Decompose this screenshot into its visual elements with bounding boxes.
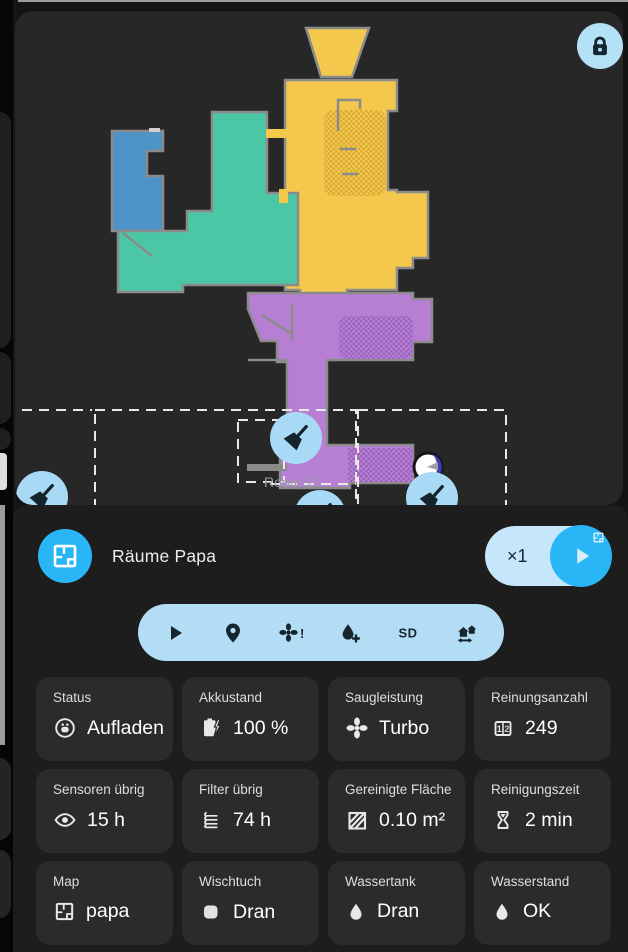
preset-title: Räume Papa (112, 546, 216, 567)
sd-card-icon: SD (395, 621, 421, 645)
water-plus-icon (338, 621, 362, 645)
lock-icon (587, 33, 613, 59)
stat-label: Wischtuch (199, 874, 313, 889)
svg-text:1: 1 (497, 724, 502, 734)
divider-line (18, 0, 628, 2)
stat-card-sensors: Sensoren übrig 15 h (36, 769, 173, 853)
map-transfer-icon (454, 621, 479, 645)
sd-card-button[interactable]: SD (385, 610, 431, 656)
stat-card-area: Gereinigte Fläche 0.10 m² (328, 769, 465, 853)
svg-text:2: 2 (504, 724, 509, 734)
floorplan-icon (53, 900, 76, 923)
stat-value: 249 (525, 717, 558, 740)
room-label: Room 17 (264, 474, 321, 490)
clean-room-button[interactable] (270, 412, 322, 464)
stat-value: Dran (233, 901, 275, 924)
stat-card-clean-time: Reinigungszeit 2 min (474, 769, 611, 853)
floorplan-icon (50, 541, 80, 571)
screen: Room 17 (0, 0, 628, 952)
counter-icon: 1 2 (491, 716, 515, 740)
stat-card-status: Status Aufladen (36, 677, 173, 761)
underlying-card-edge (0, 758, 11, 840)
stat-card-mop: Wischtuch Dran (182, 861, 319, 945)
stat-label: Sensoren übrig (53, 782, 167, 797)
stat-value: 15 h (87, 809, 125, 832)
robot-vacuum-icon (53, 716, 77, 740)
stat-label: Gereinigte Fläche (345, 782, 459, 797)
water-drop-icon (345, 901, 367, 923)
stat-card-filter: Filter übrig 74 h (182, 769, 319, 853)
bottom-sheet: Räume Papa ×1 (13, 505, 628, 952)
stat-value: papa (86, 900, 129, 923)
iteration-count: ×1 (485, 546, 528, 567)
hourglass-icon (491, 808, 515, 832)
map-lock-button[interactable] (577, 23, 623, 69)
striped-area-icon (345, 808, 369, 832)
stat-card-water-tank: Wassertank Dran (328, 861, 465, 945)
locate-pin-icon (221, 621, 245, 645)
stat-value: 2 min (525, 809, 573, 832)
panel-header: Räume Papa ×1 (13, 505, 628, 586)
locate-button[interactable] (210, 610, 256, 656)
stat-label: Status (53, 690, 167, 705)
stat-card-water-level: Wasserstand OK (474, 861, 611, 945)
robot-map[interactable]: Room 17 (15, 11, 623, 505)
stat-value: OK (523, 900, 551, 923)
battery-charging-icon (199, 716, 223, 740)
play-icon (163, 621, 187, 645)
fan-speed-button[interactable]: ! (268, 610, 314, 656)
underlying-card-edge (0, 428, 11, 450)
svg-text:!: ! (300, 626, 304, 641)
stat-label: Reinungsanzahl (491, 690, 605, 705)
stat-value: Aufladen (87, 717, 164, 740)
scrollbar[interactable] (0, 505, 5, 745)
stat-label: Saugleistung (345, 690, 459, 705)
underlying-card-edge (0, 352, 11, 424)
stat-card-battery: Akkustand 100 % (182, 677, 319, 761)
cloth-icon (199, 900, 223, 924)
floorplan-icon (592, 531, 605, 544)
iteration-pill[interactable]: ×1 (485, 526, 611, 586)
stat-value: 100 % (233, 717, 288, 740)
stat-value: Dran (377, 900, 419, 923)
underlying-card-edge (0, 850, 11, 918)
stat-label: Filter übrig (199, 782, 313, 797)
stat-label: Map (53, 874, 167, 889)
play-button[interactable] (152, 610, 198, 656)
segments-avatar-button[interactable] (38, 529, 92, 583)
stat-value: 0.10 m² (379, 809, 445, 832)
svg-text:SD: SD (399, 625, 418, 640)
underlying-card-edge (0, 112, 11, 348)
stat-cards-grid: Status Aufladen Akkustand (36, 677, 628, 945)
clean-room-button[interactable] (294, 490, 346, 505)
start-cleanup-button[interactable] (550, 525, 612, 587)
stat-card-clean-count: Reinungsanzahl 1 2 249 (474, 677, 611, 761)
room-blue-region[interactable] (112, 131, 163, 231)
water-usage-button[interactable] (327, 610, 373, 656)
water-drop-icon (491, 901, 513, 923)
map-card: Room 17 (15, 11, 623, 505)
stat-label: Reinigungszeit (491, 782, 605, 797)
action-bar: ! SD (138, 604, 504, 661)
map-management-button[interactable] (443, 610, 489, 656)
fan-alert-icon: ! (278, 621, 304, 645)
clean-room-button[interactable] (16, 471, 68, 505)
eye-icon (53, 808, 77, 832)
play-icon (568, 543, 594, 569)
filter-icon (199, 808, 223, 832)
stat-label: Akkustand (199, 690, 313, 705)
fan-icon (345, 716, 369, 740)
stat-value: Turbo (379, 717, 429, 740)
stat-card-fan-speed: Saugleistung Turbo (328, 677, 465, 761)
stat-value: 74 h (233, 809, 271, 832)
stat-card-map: Map papa (36, 861, 173, 945)
edge-handle[interactable] (0, 453, 7, 490)
stat-label: Wasserstand (491, 874, 605, 889)
stat-label: Wassertank (345, 874, 459, 889)
